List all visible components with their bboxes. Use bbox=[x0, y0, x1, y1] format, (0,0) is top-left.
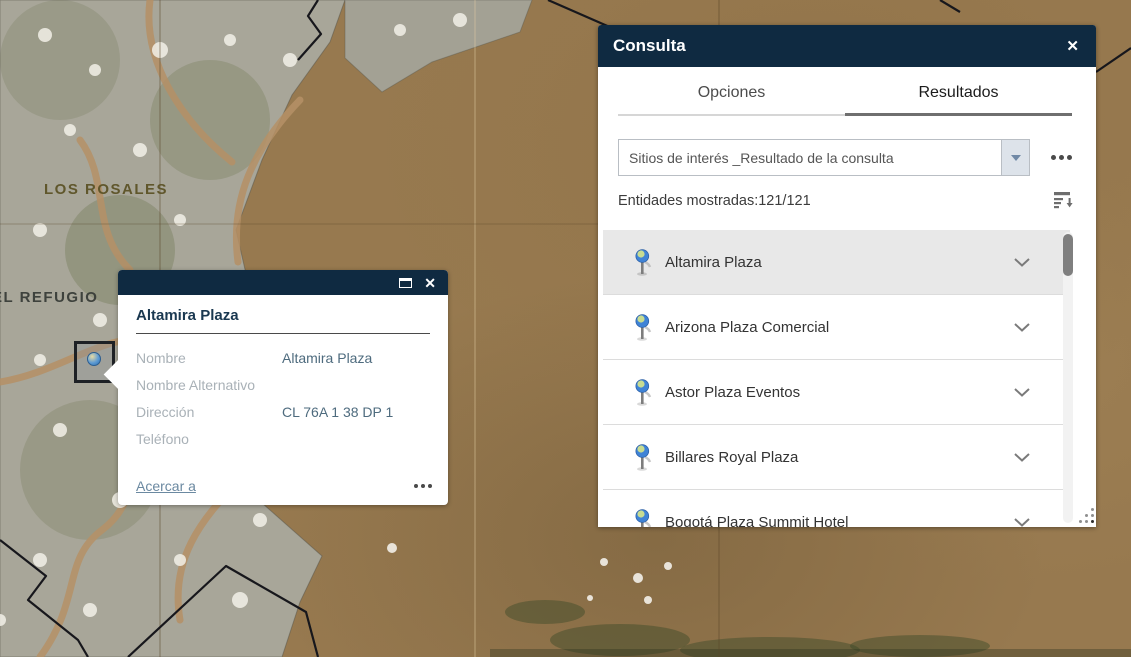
tab-bar: Opciones Resultados bbox=[618, 84, 1072, 116]
chevron-down-icon[interactable] bbox=[1014, 258, 1030, 267]
pushpin-icon bbox=[633, 444, 652, 471]
results-scrollbar-thumb[interactable] bbox=[1063, 234, 1073, 276]
attribute-label: Teléfono bbox=[136, 431, 282, 447]
attribute-value: Altamira Plaza bbox=[282, 350, 372, 366]
tab-opciones[interactable]: Opciones bbox=[618, 84, 845, 116]
chevron-down-icon[interactable] bbox=[1014, 323, 1030, 332]
popup-maximize-icon[interactable] bbox=[399, 278, 412, 288]
result-row-label: Altamira Plaza bbox=[665, 254, 1014, 271]
popup-header[interactable]: ✕ bbox=[118, 270, 448, 295]
panel-close-icon[interactable]: ✕ bbox=[1066, 39, 1079, 54]
chevron-down-icon[interactable] bbox=[1001, 140, 1029, 175]
app-window: LOS ROSALES EL REFUGIO ✕ Altamira Plaza … bbox=[0, 0, 1131, 657]
tab-resultados[interactable]: Resultados bbox=[845, 84, 1072, 116]
result-row-arizona-plaza-comercial[interactable]: Arizona Plaza Comercial bbox=[603, 295, 1070, 360]
attribute-label: Dirección bbox=[136, 404, 282, 420]
attribute-row: Nombre Alternativo bbox=[136, 371, 430, 398]
attribute-label: Nombre Alternativo bbox=[136, 377, 282, 393]
attribute-row: Nombre Altamira Plaza bbox=[136, 344, 430, 371]
attribute-value: CL 76A 1 38 DP 1 bbox=[282, 404, 393, 420]
attribute-table: Nombre Altamira Plaza Nombre Alternativo… bbox=[136, 344, 430, 452]
results-list: Altamira Plaza Arizona Plaza Comercial bbox=[598, 230, 1096, 527]
attribute-label: Nombre bbox=[136, 350, 282, 366]
panel-header: Consulta ✕ bbox=[598, 25, 1096, 67]
pushpin-icon bbox=[633, 249, 652, 276]
pushpin-icon bbox=[633, 314, 652, 341]
chevron-down-icon[interactable] bbox=[1014, 518, 1030, 527]
result-row-billares-royal-plaza[interactable]: Billares Royal Plaza bbox=[603, 425, 1070, 490]
consulta-panel: Consulta ✕ Opciones Resultados Sitios de… bbox=[598, 25, 1096, 527]
results-scrollbar-track[interactable] bbox=[1063, 232, 1073, 523]
sort-icon[interactable] bbox=[1054, 192, 1074, 209]
popup-body: Altamira Plaza Nombre Altamira Plaza Nom… bbox=[118, 295, 448, 505]
result-row-label: Billares Royal Plaza bbox=[665, 449, 1014, 466]
result-row-altamira-plaza[interactable]: Altamira Plaza bbox=[603, 230, 1070, 295]
zoom-to-link[interactable]: Acercar a bbox=[136, 478, 196, 494]
popup-title: Altamira Plaza bbox=[136, 307, 430, 334]
feature-point-marker[interactable] bbox=[87, 352, 101, 366]
chevron-down-icon[interactable] bbox=[1014, 388, 1030, 397]
result-row-label: Bogotá Plaza Summit Hotel bbox=[665, 514, 1014, 528]
popup-close-icon[interactable]: ✕ bbox=[424, 276, 436, 290]
result-layer-select[interactable]: Sitios de interés _Resultado de la consu… bbox=[618, 139, 1030, 176]
layer-more-icon[interactable] bbox=[1051, 155, 1072, 160]
map-label-el-refugio: EL REFUGIO bbox=[0, 289, 98, 306]
panel-title: Consulta bbox=[613, 36, 686, 56]
entities-count-text: Entidades mostradas:121/121 bbox=[618, 193, 811, 209]
pushpin-icon bbox=[633, 379, 652, 406]
attribute-row: Teléfono bbox=[136, 425, 430, 452]
attribute-row: Dirección CL 76A 1 38 DP 1 bbox=[136, 398, 430, 425]
feature-popup: ✕ Altamira Plaza Nombre Altamira Plaza N… bbox=[118, 270, 448, 505]
popup-more-icon[interactable] bbox=[414, 484, 432, 488]
chevron-down-icon[interactable] bbox=[1014, 453, 1030, 462]
result-row-label: Astor Plaza Eventos bbox=[665, 384, 1014, 401]
panel-resize-grip[interactable] bbox=[1077, 508, 1095, 525]
map-label-los-rosales: LOS ROSALES bbox=[44, 181, 168, 198]
result-layer-select-value: Sitios de interés _Resultado de la consu… bbox=[619, 140, 1001, 175]
result-row-label: Arizona Plaza Comercial bbox=[665, 319, 1014, 336]
pushpin-icon bbox=[633, 509, 652, 528]
result-row-bogota-plaza-summit-hotel[interactable]: Bogotá Plaza Summit Hotel bbox=[603, 490, 1070, 527]
result-row-astor-plaza-eventos[interactable]: Astor Plaza Eventos bbox=[603, 360, 1070, 425]
